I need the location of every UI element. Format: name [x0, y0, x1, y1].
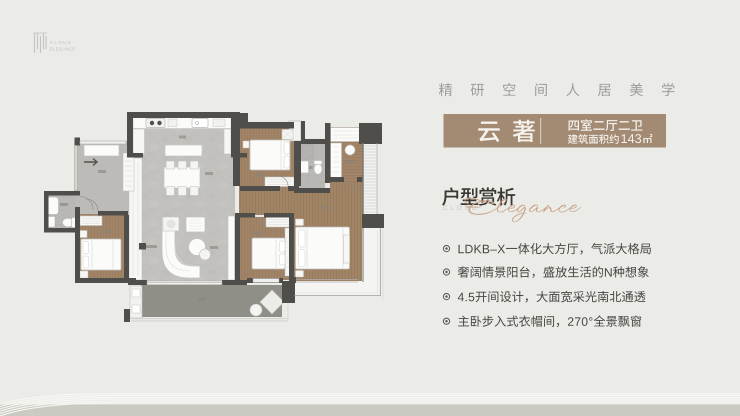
svg-text:CLOUD: CLOUD: [443, 205, 479, 212]
svg-text:CLOUD: CLOUD: [50, 40, 72, 45]
svg-text:ELEGANCE: ELEGANCE: [50, 47, 75, 52]
